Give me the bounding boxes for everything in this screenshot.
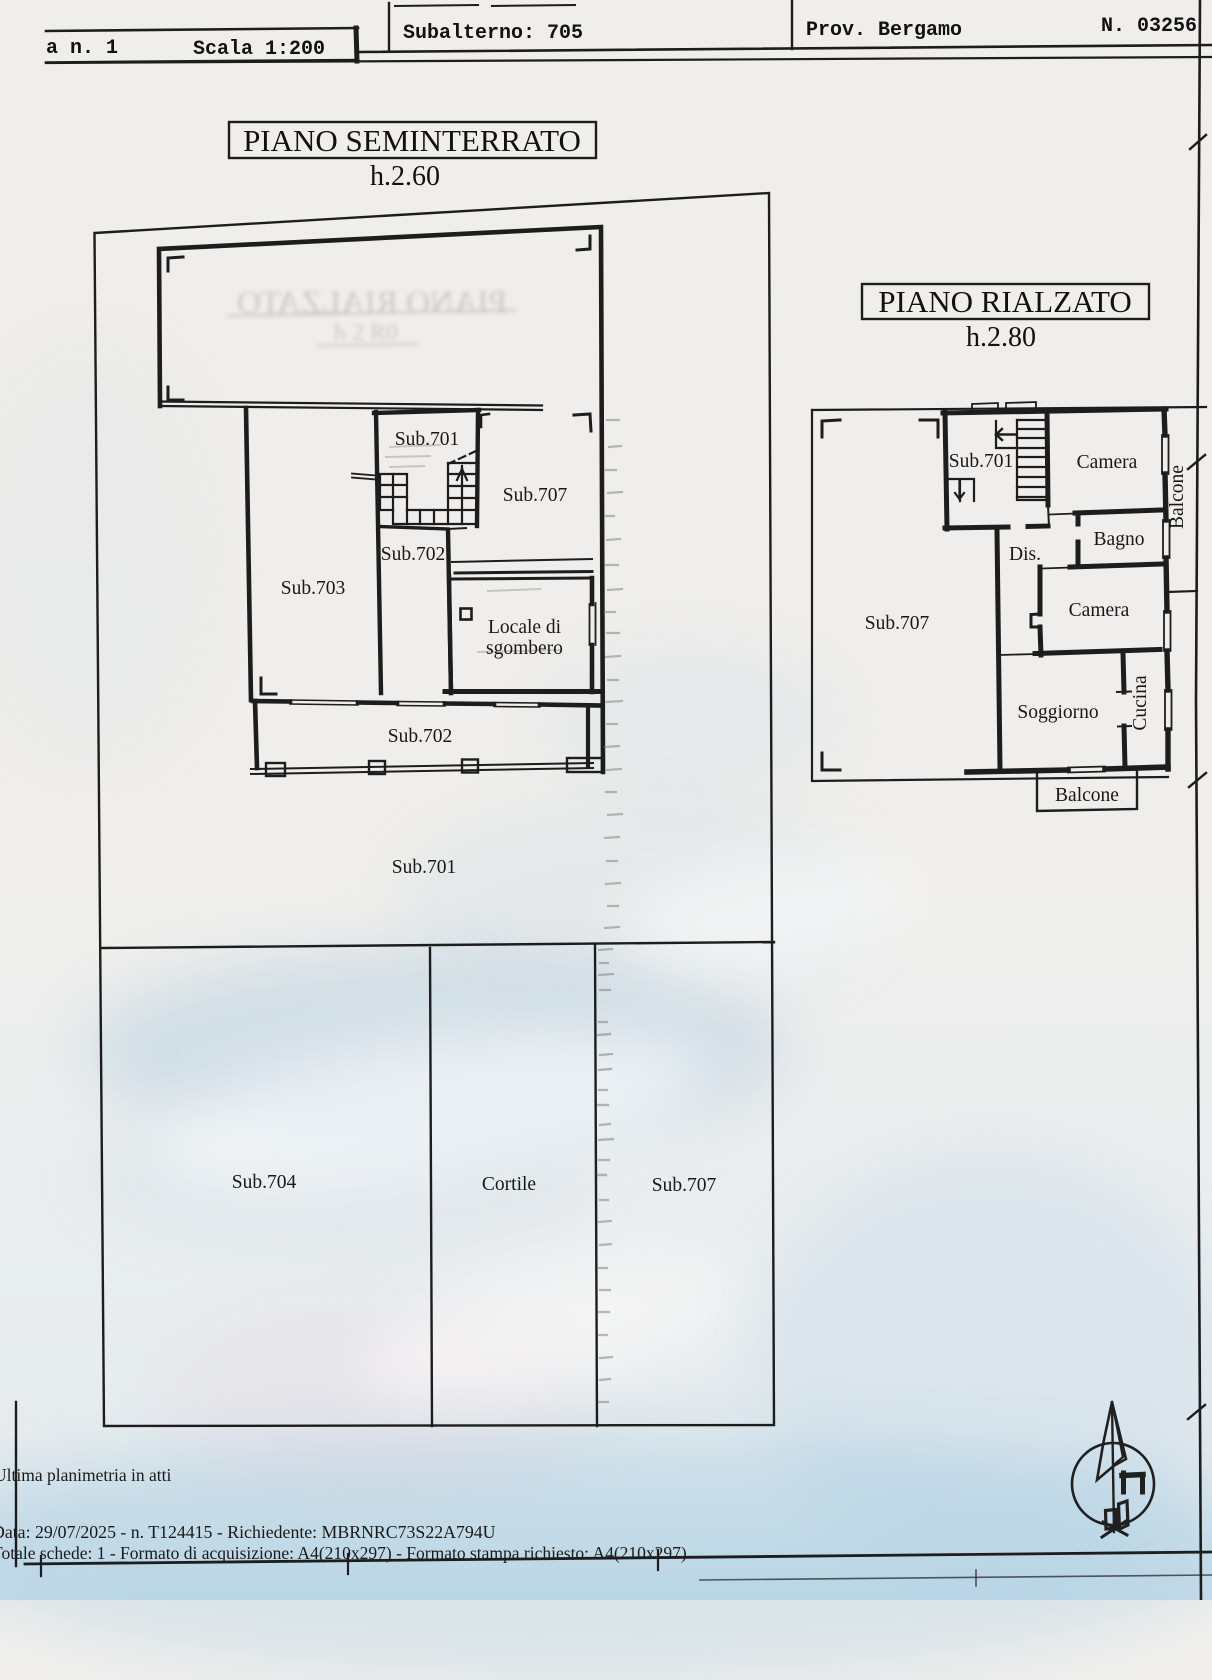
svg-text:Camera: Camera — [1069, 600, 1130, 621]
svg-text:Bagno: Bagno — [1094, 529, 1145, 550]
svg-text:Sub.703: Sub.703 — [281, 578, 345, 599]
svg-text:sgombero: sgombero — [486, 638, 563, 659]
svg-text:Sub.707: Sub.707 — [652, 1175, 717, 1196]
svg-text:PIANO SEMINTERRATO: PIANO SEMINTERRATO — [243, 123, 581, 158]
svg-text:Sub.704: Sub.704 — [232, 1172, 297, 1193]
svg-text:Cucina: Cucina — [1130, 675, 1151, 731]
svg-text:Soggiorno: Soggiorno — [1017, 702, 1098, 723]
svg-text:PIANO RIALZATO: PIANO RIALZATO — [878, 284, 1131, 319]
svg-text:h 2 R0: h 2 R0 — [334, 320, 398, 346]
svg-text:h.2.60: h.2.60 — [370, 161, 440, 192]
svg-text:Sub.707: Sub.707 — [865, 613, 930, 634]
svg-text:Ultima planimetria in atti: Ultima planimetria in atti — [0, 1465, 172, 1485]
svg-text:Cortile: Cortile — [482, 1174, 536, 1195]
svg-text:h.2.80: h.2.80 — [966, 322, 1036, 353]
svg-text:N. 03256: N. 03256 — [1101, 15, 1197, 38]
svg-text:Prov. Bergamo: Prov. Bergamo — [806, 19, 962, 42]
svg-text:Sub.702: Sub.702 — [381, 544, 445, 565]
svg-text:Balcone: Balcone — [1167, 465, 1188, 529]
svg-text:Sub.707: Sub.707 — [503, 485, 568, 506]
svg-text:Sub.701: Sub.701 — [392, 857, 456, 878]
svg-text:Camera: Camera — [1077, 452, 1138, 473]
svg-text:Balcone: Balcone — [1055, 785, 1119, 806]
svg-text:Sub.701: Sub.701 — [949, 451, 1013, 472]
svg-text:Dis.: Dis. — [1009, 544, 1041, 565]
svg-text:Data: 29/07/2025 - n. T124415: Data: 29/07/2025 - n. T124415 - Richiede… — [0, 1522, 496, 1542]
svg-text:Sub.702: Sub.702 — [388, 726, 452, 747]
svg-text:Subalterno: 705: Subalterno: 705 — [403, 22, 583, 45]
svg-text:Scala 1:200: Scala 1:200 — [193, 38, 325, 61]
svg-text:Locale di: Locale di — [488, 617, 562, 638]
svg-text:a n. 1: a n. 1 — [46, 37, 118, 60]
svg-text:Sub.701: Sub.701 — [395, 429, 459, 450]
